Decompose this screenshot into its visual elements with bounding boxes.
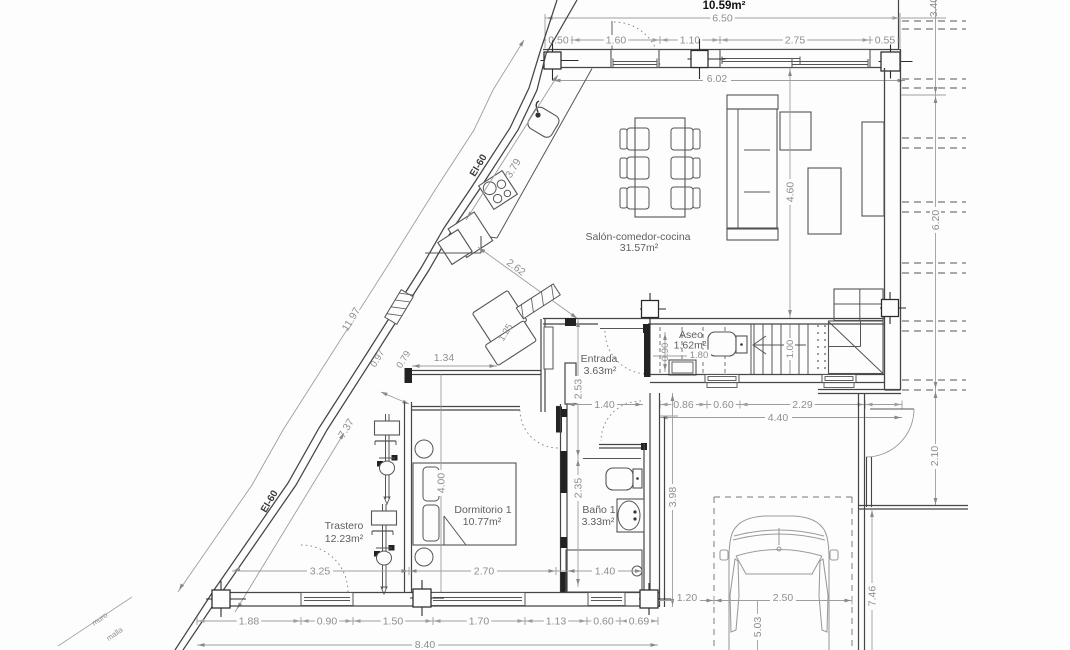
svg-text:10.77m²: 10.77m² bbox=[463, 516, 502, 528]
svg-text:1.20: 1.20 bbox=[677, 592, 698, 604]
svg-text:1.10: 1.10 bbox=[680, 35, 701, 47]
svg-text:2.50: 2.50 bbox=[773, 592, 794, 604]
svg-text:8.40: 8.40 bbox=[415, 639, 436, 650]
svg-text:Trastero: Trastero bbox=[325, 520, 364, 532]
svg-text:5.03: 5.03 bbox=[752, 617, 764, 638]
svg-text:2.70: 2.70 bbox=[474, 566, 495, 578]
svg-text:2.29: 2.29 bbox=[792, 399, 813, 411]
svg-text:Dormitorio 1: Dormitorio 1 bbox=[454, 504, 511, 516]
svg-text:3.40: 3.40 bbox=[928, 0, 940, 17]
svg-text:7.46: 7.46 bbox=[867, 586, 879, 607]
svg-text:0.60: 0.60 bbox=[593, 616, 614, 628]
svg-text:0.60: 0.60 bbox=[713, 399, 734, 411]
svg-text:1.70: 1.70 bbox=[469, 616, 490, 628]
svg-text:0.55: 0.55 bbox=[875, 35, 896, 47]
svg-text:3.25: 3.25 bbox=[310, 566, 331, 578]
svg-text:1.40: 1.40 bbox=[594, 399, 615, 411]
svg-text:6.20: 6.20 bbox=[930, 210, 942, 231]
svg-text:0.90: 0.90 bbox=[660, 343, 671, 362]
svg-text:3.33m²: 3.33m² bbox=[582, 516, 615, 528]
svg-text:1.13: 1.13 bbox=[546, 616, 567, 628]
svg-text:1.00: 1.00 bbox=[785, 340, 796, 359]
svg-text:3.98: 3.98 bbox=[667, 487, 679, 508]
svg-text:1.34: 1.34 bbox=[434, 352, 455, 364]
svg-text:4.40: 4.40 bbox=[768, 412, 789, 424]
svg-text:1.50: 1.50 bbox=[383, 616, 404, 628]
svg-text:10.59m²: 10.59m² bbox=[703, 0, 746, 12]
svg-text:Entrada: Entrada bbox=[581, 353, 618, 365]
svg-text:4.60: 4.60 bbox=[785, 182, 797, 203]
svg-text:6.02: 6.02 bbox=[707, 73, 728, 85]
svg-text:1.80: 1.80 bbox=[690, 350, 709, 361]
svg-text:1.60: 1.60 bbox=[606, 35, 627, 47]
svg-text:0.86: 0.86 bbox=[673, 399, 694, 411]
svg-text:2.10: 2.10 bbox=[929, 446, 941, 467]
svg-text:1.88: 1.88 bbox=[239, 616, 260, 628]
svg-text:0.90: 0.90 bbox=[317, 616, 338, 628]
svg-text:6.50: 6.50 bbox=[712, 13, 733, 25]
svg-text:1.40: 1.40 bbox=[595, 566, 616, 578]
svg-text:12.23m²: 12.23m² bbox=[325, 533, 364, 545]
svg-text:0.69: 0.69 bbox=[629, 616, 650, 628]
svg-text:31.57m²: 31.57m² bbox=[620, 242, 659, 254]
svg-text:Baño 1: Baño 1 bbox=[582, 504, 615, 516]
svg-text:4.00: 4.00 bbox=[436, 473, 448, 494]
svg-text:2.53: 2.53 bbox=[573, 379, 585, 400]
svg-text:2.35: 2.35 bbox=[573, 478, 585, 499]
svg-text:3.63m²: 3.63m² bbox=[584, 365, 617, 377]
svg-text:2.75: 2.75 bbox=[785, 35, 806, 47]
